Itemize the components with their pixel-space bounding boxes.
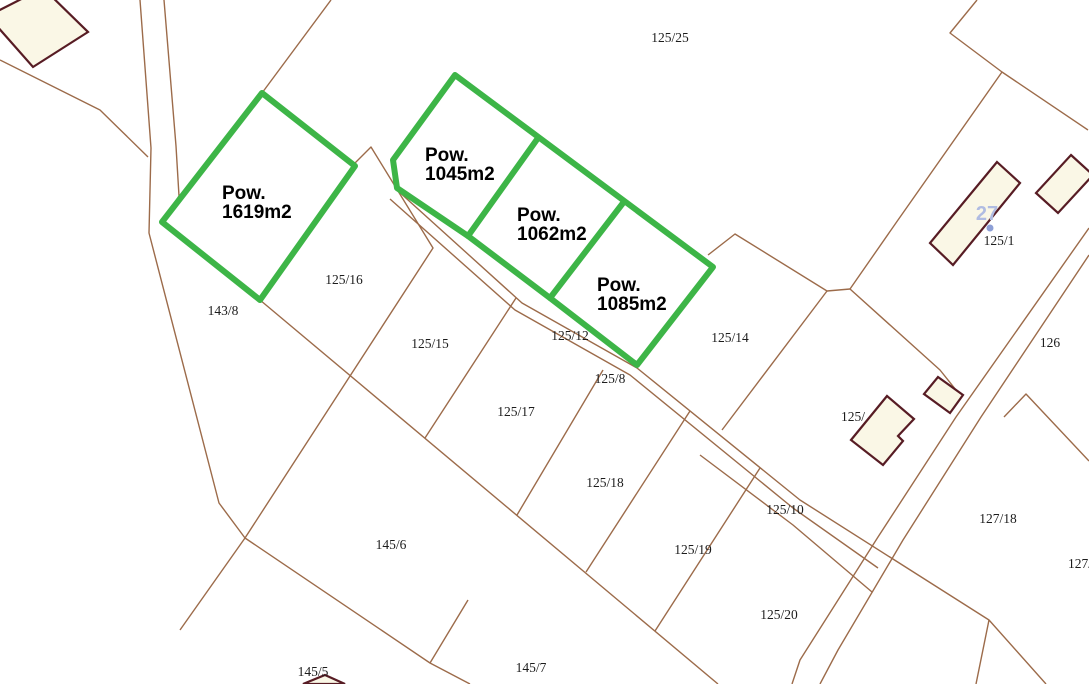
area-label: Pow. (597, 275, 641, 296)
parcel-label: 145/7 (516, 660, 547, 675)
parcel-label: 125/1 (984, 233, 1015, 248)
parcel-boundary-line (0, 60, 148, 157)
parcel-label: 125/ (841, 409, 865, 424)
parcel-label: 125/12 (551, 328, 589, 343)
parcel-labels-behind: 125/ (841, 409, 865, 424)
parcel-boundary-line (700, 455, 872, 592)
area-label: Pow. (222, 183, 266, 204)
building-small-square (924, 377, 963, 413)
area-label: Pow. (517, 205, 561, 226)
parcel-boundary-line (722, 291, 827, 430)
parcel-boundaries (0, 0, 1089, 684)
cadastral-map-viewport[interactable]: 125/125/25143/8125/16125/15125/12125/812… (0, 0, 1089, 684)
parcel-boundary-line (140, 0, 245, 538)
parcel-label: 127/18 (979, 511, 1017, 526)
address-dot (987, 225, 994, 232)
building-l-shaped (851, 396, 914, 465)
buildings (0, 0, 1089, 684)
parcel-boundary-line (245, 538, 470, 684)
parcel-boundary-line (976, 620, 989, 684)
parcel-label: 125/14 (711, 330, 749, 345)
parcel-boundary-line (820, 255, 1089, 684)
parcel-boundary-line (390, 199, 878, 568)
parcel-boundary-line (262, 0, 331, 93)
parcel-label: 125/10 (766, 502, 804, 517)
area-label: Pow. (425, 145, 469, 166)
parcel-label: 126 (1040, 335, 1061, 350)
parcel-label: 125/17 (497, 404, 535, 419)
parcel-label: 125/20 (760, 607, 798, 622)
parcel-label: 145/6 (376, 537, 407, 552)
cadastral-map: 125/125/25143/8125/16125/15125/12125/812… (0, 0, 1089, 684)
area-label: 1619m2 (222, 202, 292, 223)
parcel-boundary-line (397, 190, 1046, 684)
building-top-left (0, 0, 88, 67)
area-label: 1045m2 (425, 164, 495, 185)
parcel-label: 145/5 (298, 664, 329, 679)
parcel-label: 127/ (1068, 556, 1089, 571)
parcel-label: 143/8 (208, 303, 239, 318)
parcel-boundary-line (163, 0, 179, 221)
parcel-label: 125/25 (651, 30, 689, 45)
parcel-label: 125/18 (586, 475, 624, 490)
area-label: 1085m2 (597, 294, 667, 315)
parcel-boundary-line (180, 538, 245, 630)
parcel-boundary-line (1004, 394, 1089, 461)
parcel-boundary-line (430, 600, 468, 663)
parcel-boundary-line (517, 370, 603, 515)
parcel-boundary-line (850, 289, 960, 395)
parcel-label: 125/8 (595, 371, 626, 386)
parcel-boundary-line (260, 300, 718, 684)
address-number: 27 (976, 203, 998, 225)
building-top-right (1036, 155, 1089, 213)
parcel-label: 125/16 (325, 272, 363, 287)
parcel-label: 125/19 (674, 542, 712, 557)
parcel-boundary-line (792, 228, 1089, 684)
area-label: 1062m2 (517, 224, 587, 245)
parcel-boundary-line (1002, 72, 1088, 130)
parcel-boundary-line (708, 234, 850, 291)
parcel-label: 125/15 (411, 336, 449, 351)
parcel-boundary-line (850, 0, 1002, 289)
